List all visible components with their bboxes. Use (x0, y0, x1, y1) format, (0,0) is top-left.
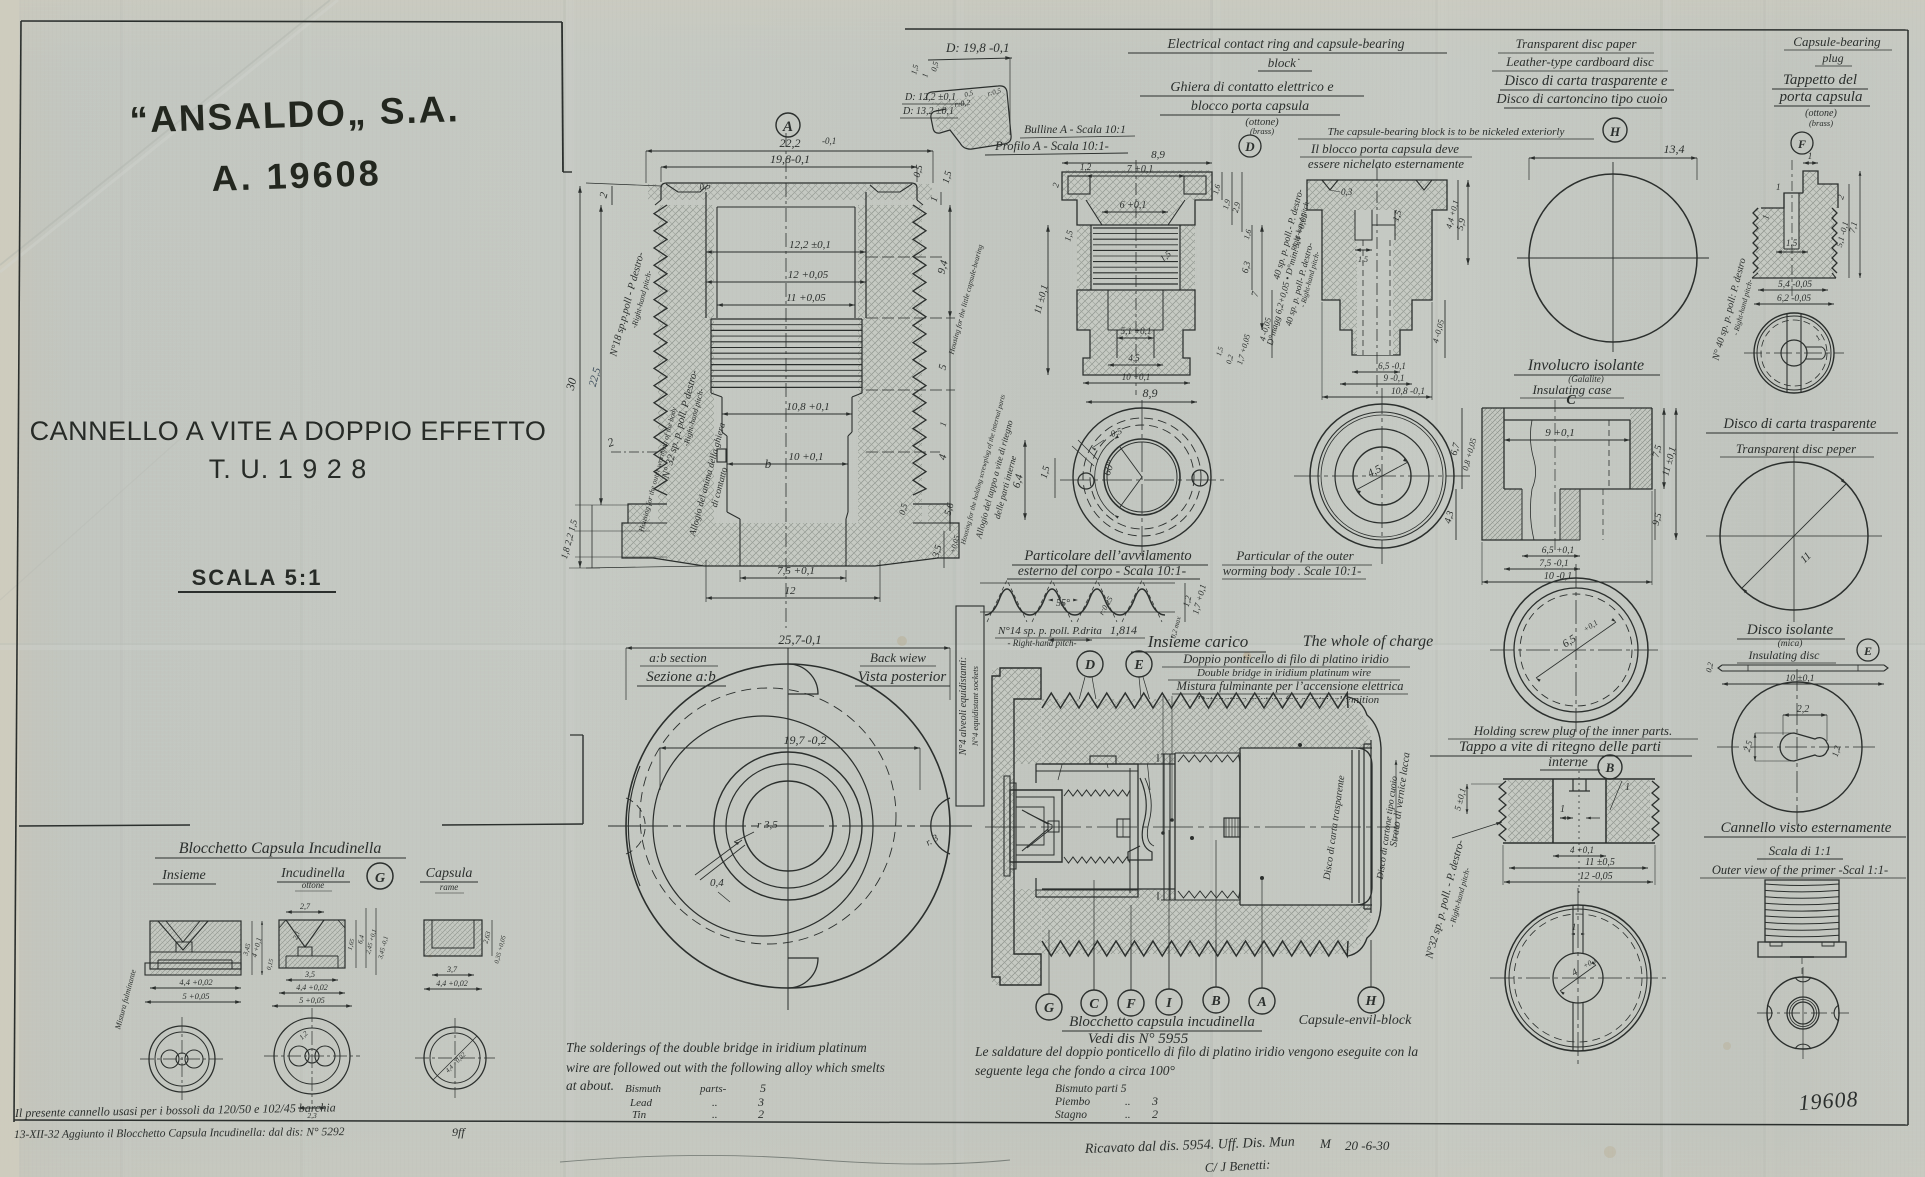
svg-text:Vista posterior: Vista posterior (858, 669, 947, 685)
svg-text:..: .. (1125, 1109, 1131, 1121)
svg-text:N°14 sp. p. poll. P.drita: N°14 sp. p. poll. P.drita (997, 625, 1102, 637)
svg-text:interne: interne (1548, 755, 1588, 770)
svg-text:Piembo: Piembo (1054, 1096, 1090, 1108)
svg-text:10 +0,1: 10 +0,1 (789, 451, 824, 463)
svg-text:Tappo a vite di ritegno delle: Tappo a vite di ritegno delle parti (1459, 739, 1661, 755)
svg-text:The solderings of the double b: The solderings of the double bridge in i… (566, 1040, 867, 1055)
svg-text:The whole of charge: The whole of charge (1303, 633, 1434, 650)
svg-text:Back wiew: Back wiew (870, 650, 926, 665)
svg-text:B: B (1605, 760, 1615, 775)
svg-text:Incudinella: Incudinella (280, 866, 345, 881)
svg-text:8,9: 8,9 (1151, 149, 1165, 161)
svg-text:Tin: Tin (632, 1109, 647, 1121)
svg-text:0,5: 0,5 (699, 180, 712, 192)
svg-text:rame: rame (440, 882, 459, 892)
svg-text:block˙: block˙ (1268, 55, 1300, 70)
svg-text:CANNELLO A VITE A DOPPIO: CANNELLO A VITE A DOPPIO EFFETTO (30, 416, 547, 446)
svg-text:..: .. (712, 1109, 718, 1121)
svg-text:D: 12,2 ±0,1: D: 12,2 ±0,1 (904, 92, 956, 103)
svg-text:19,7 -0,2: 19,7 -0,2 (784, 733, 827, 747)
svg-text:19,8-0,1: 19,8-0,1 (770, 152, 810, 166)
svg-text:G: G (1044, 1001, 1054, 1016)
svg-text:4,4 +0,02: 4,4 +0,02 (296, 983, 327, 992)
svg-text:2: 2 (758, 1107, 764, 1121)
svg-text:(brass): (brass) (1250, 126, 1274, 136)
svg-text:Stagno: Stagno (1055, 1109, 1087, 1121)
svg-text:4,4 +0,02: 4,4 +0,02 (436, 979, 467, 988)
svg-text:A. 19608: A. 19608 (211, 152, 382, 199)
svg-text:M: M (1319, 1136, 1332, 1151)
svg-text:2,2: 2,2 (1797, 704, 1810, 715)
svg-text:T. U. 1 9 2 8: T. U. 1 9 2 8 (209, 454, 368, 484)
svg-text:Profilo A - Scala 10:1-: Profilo A - Scala 10:1- (994, 139, 1109, 153)
svg-text:D: 19,8 -0,1: D: 19,8 -0,1 (945, 40, 1010, 55)
svg-text:7,5 +0,1: 7,5 +0,1 (777, 565, 815, 577)
svg-text:6,5 +0,1: 6,5 +0,1 (1542, 546, 1575, 556)
svg-text:25,7-0,1: 25,7-0,1 (778, 632, 821, 647)
svg-text:Bismuto parti 5: Bismuto parti 5 (1055, 1083, 1127, 1095)
svg-text:F: F (1797, 137, 1806, 151)
svg-text:Capsula: Capsula (426, 866, 473, 881)
svg-text:Transparent disc peper: Transparent disc peper (1736, 441, 1857, 456)
svg-text:55°: 55° (1056, 598, 1070, 609)
svg-text:12,2 ±0,1: 12,2 ±0,1 (789, 239, 831, 251)
svg-text:3: 3 (1151, 1094, 1158, 1108)
svg-text:E: E (1863, 644, 1872, 658)
svg-text:Bismuth: Bismuth (625, 1083, 662, 1095)
svg-text:I: I (1165, 996, 1172, 1011)
svg-text:plug: plug (1821, 51, 1843, 65)
svg-text:H: H (1365, 994, 1378, 1009)
svg-text:Capsule-envil-block: Capsule-envil-block (1299, 1013, 1413, 1028)
svg-text:13,4: 13,4 (1664, 142, 1685, 156)
svg-text:1: 1 (1808, 151, 1813, 161)
svg-text:Tappetto del: Tappetto del (1783, 72, 1857, 88)
svg-text:4 +0,1: 4 +0,1 (1570, 845, 1594, 855)
svg-text:20 -6-30: 20 -6-30 (1345, 1138, 1390, 1153)
svg-text:9 +0,1: 9 +0,1 (1545, 427, 1574, 439)
svg-text:3,5: 3,5 (304, 970, 315, 979)
svg-text:1,814: 1,814 (1110, 623, 1137, 637)
svg-text:Sezione a:b: Sezione a:b (646, 669, 716, 685)
svg-text:wire are followed out with the: wire are followed out with the following… (566, 1060, 885, 1075)
svg-text:3,7: 3,7 (446, 965, 458, 974)
svg-text:6,2 -0,05: 6,2 -0,05 (1777, 294, 1811, 304)
svg-text:Outer view of the primer -Scal: Outer view of the primer -Scal 1:1- (1712, 863, 1888, 877)
svg-text:The capsule-bearing block is t: The capsule-bearing block is to be nicke… (1328, 126, 1565, 138)
svg-text:Disco isolante: Disco isolante (1746, 622, 1834, 638)
svg-text:0,4: 0,4 (710, 877, 724, 889)
svg-text:Particolare dell’avvilamento: Particolare dell’avvilamento (1023, 548, 1191, 564)
svg-text:22,2: 22,2 (780, 136, 801, 150)
svg-text:D: 13,2 ±0,1: D: 13,2 ±0,1 (902, 106, 954, 117)
svg-text:10 +0,1: 10 +0,1 (1122, 372, 1151, 382)
svg-text:essere nichelato esternamente: essere nichelato esternamente (1308, 156, 1464, 171)
svg-text:Cannello visto esternamente: Cannello visto esternamente (1721, 820, 1892, 836)
svg-text:1: 1 (1625, 782, 1630, 793)
svg-text:19608: 19608 (1798, 1086, 1860, 1115)
svg-text:Scala di 1:1: Scala di 1:1 (1769, 843, 1832, 858)
svg-text:5 +0,05: 5 +0,05 (183, 991, 210, 1001)
svg-text:Electrical contact ring and ca: Electrical contact ring and capsule-bear… (1167, 36, 1405, 51)
svg-text:Involucro isolante: Involucro isolante (1527, 357, 1644, 374)
svg-text:G: G (375, 871, 385, 886)
svg-text:Bulline A - Scala 10:1: Bulline A - Scala 10:1 (1024, 124, 1126, 136)
svg-text:C: C (1089, 997, 1099, 1012)
svg-text:Blocchetto Capsula Incudinel: Blocchetto Capsula Incudinella (179, 840, 382, 857)
svg-text:6 +0,1: 6 +0,1 (1120, 200, 1147, 211)
svg-text:SCALA 5:1: SCALA 5:1 (192, 565, 323, 590)
svg-text:9ff: 9ff (452, 1125, 466, 1139)
svg-text:1,5: 1,5 (1358, 255, 1368, 264)
svg-text:-0,1: -0,1 (822, 136, 836, 146)
svg-text:7,5 -0,1: 7,5 -0,1 (1539, 559, 1568, 569)
svg-text:0,3: 0,3 (1341, 187, 1353, 197)
svg-text:4,5: 4,5 (1128, 353, 1140, 363)
svg-text:7 +0,1: 7 +0,1 (1127, 164, 1154, 175)
svg-text:A: A (782, 119, 793, 135)
svg-text:porta capsula: porta capsula (1779, 89, 1863, 105)
svg-text:8,9: 8,9 (1143, 386, 1158, 400)
svg-text:N°4 alveoli equidistanti:: N°4 alveoli equidistanti: (958, 657, 969, 756)
svg-text:2: 2 (1152, 1107, 1158, 1121)
svg-text:r 3,5: r 3,5 (757, 819, 778, 831)
svg-text:Particular of the outer: Particular of the outer (1235, 548, 1354, 563)
svg-text:Doppio ponticello di filo di p: Doppio ponticello di filo di platino iri… (1182, 652, 1389, 666)
svg-text:Ghiera di contatto elettrico e: Ghiera di contatto elettrico e (1170, 80, 1333, 95)
svg-text:1: 1 (1776, 182, 1781, 192)
svg-text:ottone: ottone (302, 880, 325, 890)
svg-text:6,5 -0,1: 6,5 -0,1 (1378, 361, 1406, 371)
svg-text:parts-: parts- (699, 1083, 727, 1095)
svg-text:1,2: 1,2 (1080, 162, 1092, 172)
svg-text:Holding screw plug of the i: Holding screw plug of the inner parts. (1473, 723, 1673, 738)
svg-text:1,5: 1,5 (1786, 238, 1798, 248)
svg-text:Il blocco porta capsula deve: Il blocco porta capsula deve (1310, 141, 1459, 156)
svg-text:Disco di cartoncino tipo cuoio: Disco di cartoncino tipo cuoio (1495, 92, 1667, 107)
svg-text:5 +0,05: 5 +0,05 (299, 996, 324, 1005)
svg-text:Insieme: Insieme (161, 868, 206, 883)
svg-text:H: H (1609, 124, 1621, 139)
svg-text:11 +0,05: 11 +0,05 (786, 292, 826, 304)
svg-text:10,8 +0,1: 10,8 +0,1 (786, 401, 829, 413)
svg-text:..: .. (1125, 1096, 1131, 1108)
svg-text:Capsule-bearing: Capsule-bearing (1793, 34, 1881, 49)
svg-text:seguente lega che fondo a circ: seguente lega che fondo a circa 100° (975, 1063, 1175, 1078)
svg-text:C: C (1566, 393, 1576, 408)
svg-text:Lead: Lead (629, 1097, 653, 1109)
svg-text:Double bridge in iridium plati: Double bridge in iridium platinum wire (1196, 667, 1371, 679)
svg-text:Le saldature del doppio pontic: Le saldature del doppio ponticello di fi… (974, 1044, 1418, 1059)
svg-text:Mistura fulminante per l’accen: Mistura fulminante per l’accensione elet… (1175, 679, 1403, 693)
svg-text:9 -0,1: 9 -0,1 (1384, 373, 1405, 383)
svg-text:Disco di carta trasparente: Disco di carta trasparente (1723, 416, 1877, 432)
svg-text:a:b section: a:b section (649, 650, 706, 665)
svg-text:5,1 +0,1: 5,1 +0,1 (1121, 326, 1152, 336)
svg-text:blocco porta capsula: blocco porta capsula (1191, 99, 1309, 114)
svg-text:B: B (1210, 994, 1220, 1009)
svg-text:11 ±0,5: 11 ±0,5 (1585, 857, 1615, 868)
svg-text:12 -0,05: 12 -0,05 (1579, 871, 1612, 882)
svg-text:Disco di carta trasparente e: Disco di carta trasparente e (1504, 73, 1669, 89)
svg-text:esterno del corpo - Scala 10:1: esterno del corpo - Scala 10:1- (1018, 563, 1187, 578)
svg-text:4,4 +0,02: 4,4 +0,02 (179, 977, 213, 987)
svg-text:1: 1 (1572, 922, 1577, 932)
svg-text:Transparent disc paper: Transparent disc paper (1516, 36, 1638, 51)
svg-text:10,8 -0,1: 10,8 -0,1 (1391, 387, 1425, 397)
svg-text:1: 1 (1560, 804, 1565, 815)
svg-text:F: F (1125, 997, 1136, 1012)
svg-text:Insieme carico: Insieme carico (1147, 632, 1249, 651)
svg-text:Blocchetto capsula incudinella: Blocchetto capsula incudinella (1069, 1014, 1255, 1030)
svg-text:(brass): (brass) (1809, 118, 1833, 128)
svg-text:D: D (1084, 658, 1095, 673)
svg-text:12 +0,05: 12 +0,05 (788, 269, 829, 281)
svg-text:A: A (1256, 995, 1266, 1010)
svg-text:2,7: 2,7 (300, 902, 311, 911)
svg-text:E: E (1133, 658, 1143, 673)
svg-text:12: 12 (785, 585, 797, 597)
svg-text:Insulating disc: Insulating disc (1748, 648, 1821, 662)
svg-text:5,4 -0,05: 5,4 -0,05 (1778, 280, 1812, 290)
svg-text:5: 5 (760, 1081, 766, 1095)
svg-text:at about.: at about. (566, 1078, 614, 1093)
svg-text:Leather-type cardboard disc: Leather-type cardboard disc (1505, 54, 1654, 69)
svg-text:worming body . Scale 10:1-: worming body . Scale 10:1- (1223, 564, 1362, 578)
svg-text:D: D (1244, 139, 1255, 154)
svg-text:N°4 equidistant sockets: N°4 equidistant sockets (970, 665, 980, 747)
svg-text:..: .. (712, 1097, 718, 1109)
